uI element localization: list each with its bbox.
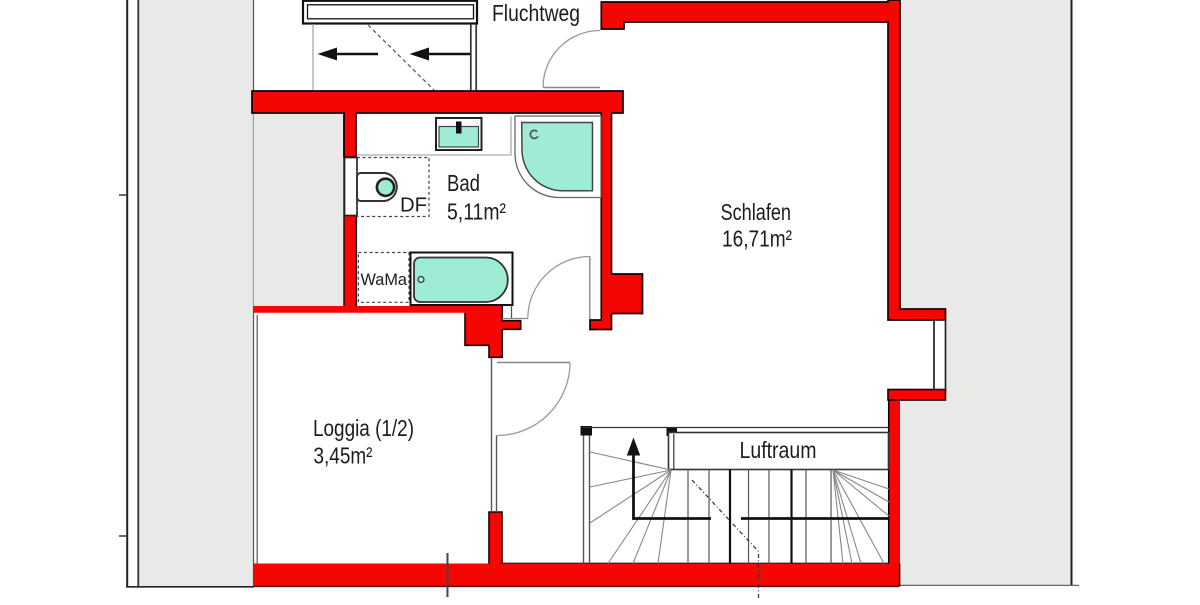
svg-text:DF: DF bbox=[400, 195, 427, 217]
svg-text:16,71m²: 16,71m² bbox=[722, 226, 792, 252]
svg-text:Schlafen: Schlafen bbox=[721, 199, 792, 225]
svg-text:WaMa: WaMa bbox=[361, 270, 408, 289]
svg-text:Loggia (1/2): Loggia (1/2) bbox=[313, 415, 414, 441]
svg-text:5,11m²: 5,11m² bbox=[447, 198, 506, 224]
svg-text:Fluchtweg: Fluchtweg bbox=[492, 0, 580, 26]
svg-text:Luftraum: Luftraum bbox=[740, 437, 817, 463]
svg-text:Bad: Bad bbox=[447, 170, 480, 196]
svg-text:3,45m²: 3,45m² bbox=[314, 442, 373, 468]
